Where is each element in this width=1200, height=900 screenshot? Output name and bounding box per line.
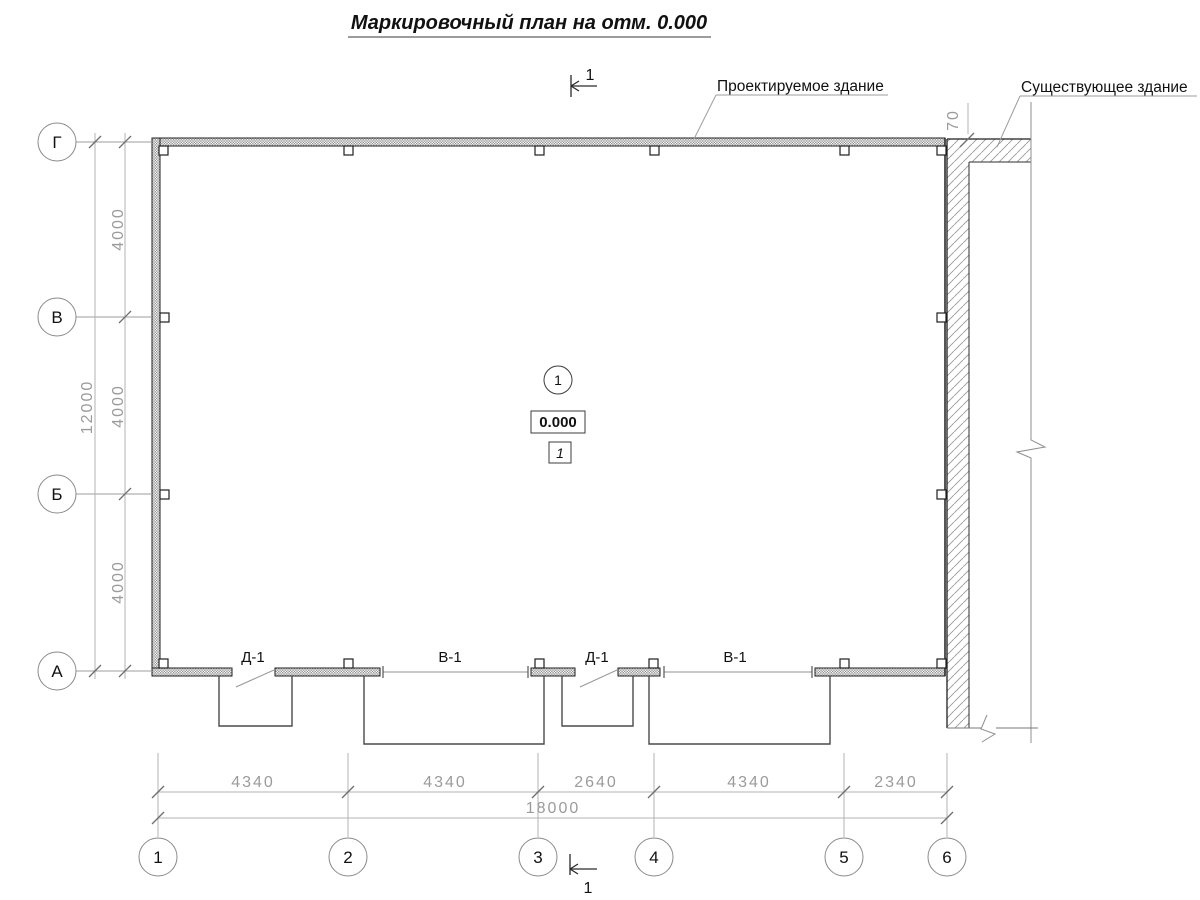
plan-canvas: Маркировочный план на отм. 0.000	[0, 0, 1200, 900]
column	[649, 659, 658, 668]
column	[160, 490, 169, 499]
column	[344, 659, 353, 668]
dim-gap: 70	[945, 109, 962, 131]
opening-label-d2: Д-1	[585, 649, 609, 666]
section-marks: 1 1	[570, 67, 597, 897]
interior-markers: 1 0.000 1	[531, 366, 585, 463]
porches	[219, 676, 830, 744]
elevation-value: 0.000	[539, 414, 577, 431]
column	[937, 146, 946, 155]
wall-top	[152, 138, 945, 146]
designed-building-label: Проектируемое здание	[717, 78, 884, 95]
column	[937, 490, 946, 499]
column	[535, 146, 544, 155]
gate-ramp-2	[649, 676, 830, 744]
dim-bottom-segment-1: 4340	[231, 774, 275, 791]
grid-col-label: 4	[649, 848, 658, 867]
dim-bottom-segment-4: 4340	[727, 774, 771, 791]
grid-col-label: 6	[942, 848, 951, 867]
door-leaf-1	[236, 670, 274, 687]
existing-wall-top	[947, 139, 1031, 162]
column	[159, 146, 168, 155]
opening-label-d1: Д-1	[241, 649, 265, 666]
wall-bottom-seg5	[815, 668, 945, 676]
column	[344, 146, 353, 155]
grid-col-label: 2	[343, 848, 352, 867]
gate-ramp-1	[364, 676, 544, 744]
wall-bottom-seg4	[618, 668, 660, 676]
section-number-top: 1	[586, 67, 595, 84]
dim-bottom-total: 18000	[526, 800, 581, 817]
wall-left	[152, 138, 160, 676]
title-block: Маркировочный план на отм. 0.000	[348, 12, 711, 37]
left-grid-dimensions: 4000 4000 4000 12000 Г В Б А	[38, 123, 152, 690]
dim-bottom-segment-2: 4340	[423, 774, 467, 791]
new-building-walls	[152, 138, 945, 676]
grid-col-label: 5	[839, 848, 848, 867]
existing-right-break-line	[1017, 102, 1045, 743]
dim-left-total: 12000	[79, 380, 96, 435]
dim-left-segment-3: 4000	[110, 560, 127, 604]
column	[937, 659, 946, 668]
dim-bottom-segment-3: 2640	[574, 774, 618, 791]
column	[160, 313, 169, 322]
door-leaf-2	[580, 670, 617, 687]
grid-col-label: 3	[533, 848, 542, 867]
column	[650, 146, 659, 155]
room-number: 1	[556, 445, 564, 461]
section-arrowhead	[571, 86, 579, 91]
column	[937, 313, 946, 322]
drawing-sheet: Маркировочный план на отм. 0.000	[0, 0, 1200, 900]
label-leader	[694, 95, 716, 139]
column	[840, 659, 849, 668]
section-arrowhead	[570, 864, 578, 869]
page-title: Маркировочный план на отм. 0.000	[351, 12, 707, 34]
door-porch-1	[219, 676, 292, 726]
opening-label-v1: В-1	[438, 649, 461, 666]
dim-bottom-segment-5: 2340	[874, 774, 918, 791]
section-number-bottom: 1	[584, 880, 593, 897]
existing-building-label: Существующее здание	[1021, 79, 1188, 96]
grid-row-label: В	[51, 308, 62, 327]
section-arrowhead	[571, 81, 579, 86]
door-porch-2	[562, 676, 633, 726]
existing-bottom-break-line	[981, 715, 995, 742]
grid-col-label: 1	[153, 848, 162, 867]
node-marker-number: 1	[554, 372, 562, 388]
wall-bottom-seg3	[531, 668, 575, 676]
bottom-grid-dimensions: 4340 4340 2640 4340 2340 18000 1 2 3 4 5…	[139, 753, 966, 876]
opening-labels: Д-1 В-1 Д-1 В-1	[241, 649, 746, 666]
column	[840, 146, 849, 155]
column	[535, 659, 544, 668]
existing-building	[947, 102, 1045, 743]
dim-left-segment-1: 4000	[110, 207, 127, 251]
columns	[159, 146, 946, 668]
dim-left-segment-2: 4000	[110, 384, 127, 428]
section-arrowhead	[570, 869, 578, 874]
opening-label-v2: В-1	[723, 649, 746, 666]
grid-row-label: Б	[51, 485, 62, 504]
wall-bottom-seg1	[152, 668, 232, 676]
column	[159, 659, 168, 668]
wall-bottom-seg2	[275, 668, 380, 676]
existing-wall-vertical	[947, 139, 969, 728]
grid-row-label: А	[51, 662, 63, 681]
grid-row-label: Г	[52, 133, 61, 152]
